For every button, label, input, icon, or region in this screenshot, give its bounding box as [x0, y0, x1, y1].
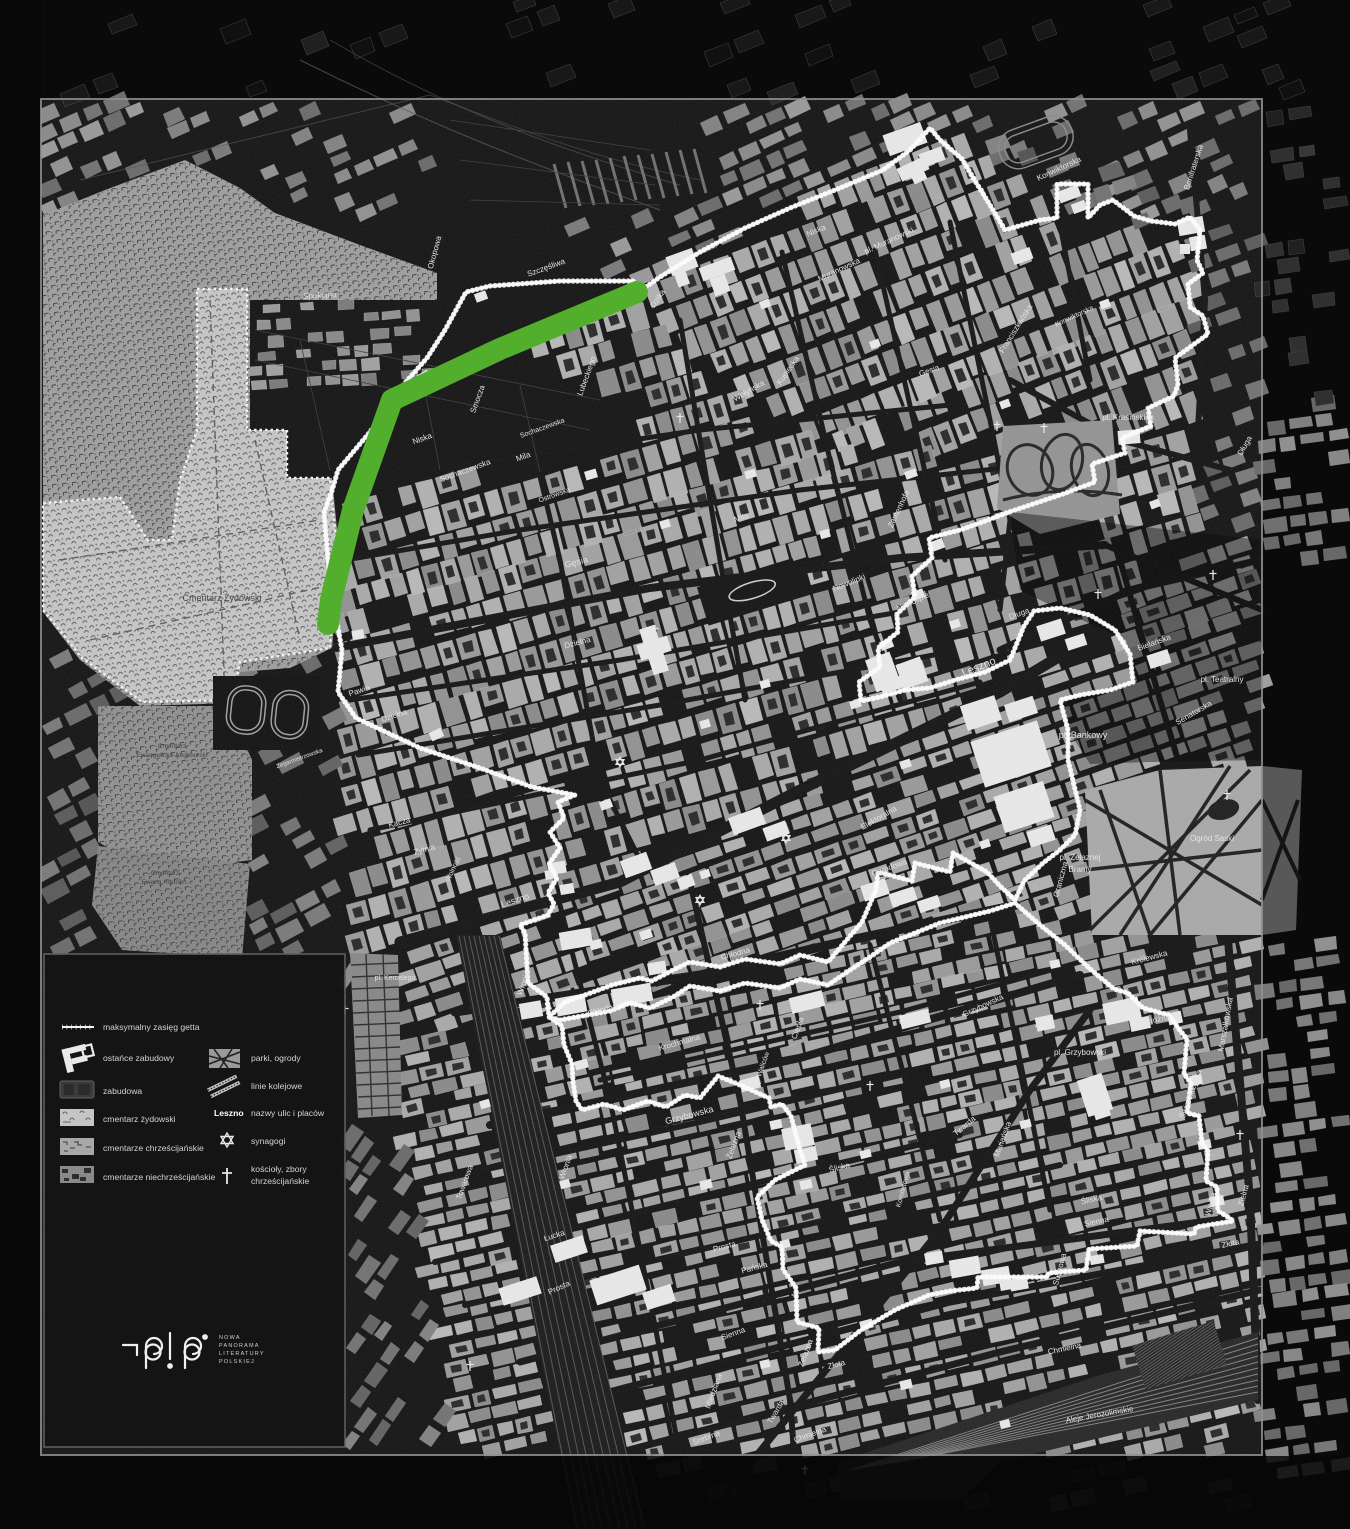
svg-text:nazwy ulic i placów: nazwy ulic i placów — [251, 1108, 325, 1118]
svg-text:LITERATURY: LITERATURY — [219, 1351, 265, 1357]
svg-text:PANORAMA: PANORAMA — [219, 1343, 260, 1349]
svg-text:maksymalny zasięg getta: maksymalny zasięg getta — [103, 1022, 200, 1032]
svg-text:POLSKIEJ: POLSKIEJ — [219, 1359, 255, 1365]
svg-text:chrześcijańskie: chrześcijańskie — [251, 1176, 309, 1186]
svg-text:cmentarze chrześcijańskie: cmentarze chrześcijańskie — [103, 1143, 204, 1153]
svg-text:parki, ogrody: parki, ogrody — [251, 1053, 301, 1063]
svg-text:linie kolejowe: linie kolejowe — [251, 1081, 302, 1091]
svg-text:zabudowa: zabudowa — [103, 1086, 142, 1096]
svg-text:ostańce zabudowy: ostańce zabudowy — [103, 1053, 175, 1063]
svg-text:cmentarz żydowski: cmentarz żydowski — [103, 1114, 176, 1124]
svg-text:cmentarze niechrześcijańskie: cmentarze niechrześcijańskie — [103, 1172, 215, 1182]
svg-text:synagogi: synagogi — [251, 1136, 285, 1146]
svg-text:NOWA: NOWA — [219, 1335, 241, 1341]
svg-text:Leszno: Leszno — [214, 1108, 244, 1118]
svg-text:kościoły, zbory: kościoły, zbory — [251, 1164, 307, 1174]
